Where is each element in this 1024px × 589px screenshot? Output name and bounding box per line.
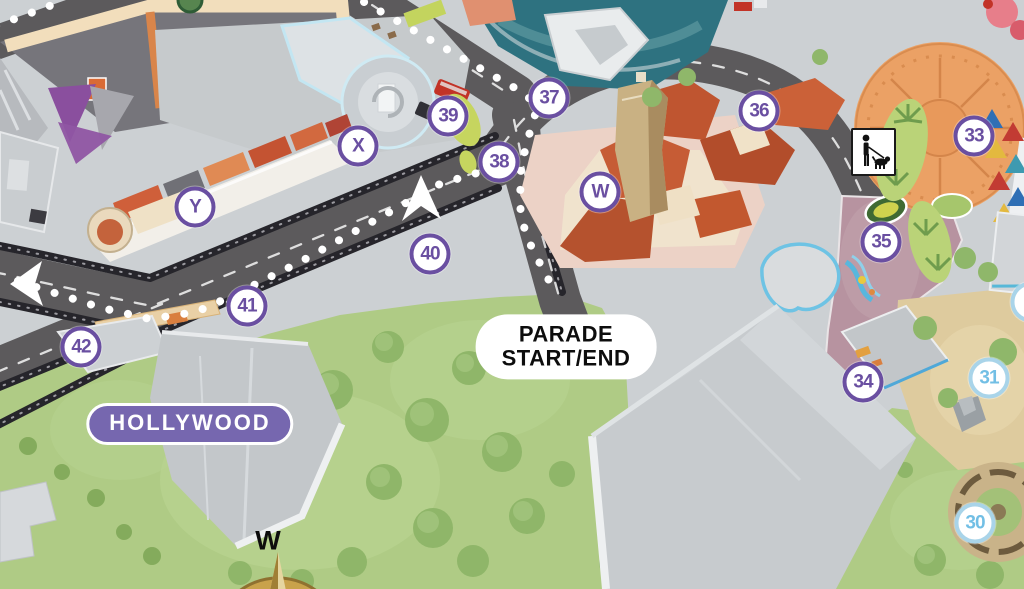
location-badge-36[interactable]: 36 xyxy=(739,91,780,132)
location-badge-37[interactable]: 37 xyxy=(529,78,570,119)
location-badge-39[interactable]: 39 xyxy=(428,96,469,137)
parade-label-line2: START/END xyxy=(502,347,631,371)
compass-west-label: W xyxy=(255,526,280,557)
parade-label-line1: PARADE xyxy=(502,322,631,346)
location-badge-35[interactable]: 35 xyxy=(861,222,902,263)
location-badge-42[interactable]: 42 xyxy=(61,327,102,368)
location-badge-33[interactable]: 33 xyxy=(954,116,995,157)
location-badge-X[interactable]: X xyxy=(338,126,379,167)
park-map-page: { "map": { "area_label": "HOLLYWOOD", "p… xyxy=(0,0,1024,589)
park-map-canvas xyxy=(0,0,1024,589)
location-badge-41[interactable]: 41 xyxy=(227,286,268,327)
location-badge-40[interactable]: 40 xyxy=(410,234,451,275)
location-badge-38[interactable]: 38 xyxy=(479,142,520,183)
hollywood-area-label: HOLLYWOOD xyxy=(86,403,293,445)
location-badge-Y[interactable]: Y xyxy=(175,187,216,228)
location-badge-34[interactable]: 34 xyxy=(843,362,884,403)
location-badge-31[interactable]: 31 xyxy=(969,358,1010,399)
location-badge-W[interactable]: W xyxy=(580,172,621,213)
parade-start-end-label: PARADE START/END xyxy=(476,314,657,379)
location-badge-30[interactable]: 30 xyxy=(955,503,996,544)
service-animal-relief-icon xyxy=(851,128,896,176)
